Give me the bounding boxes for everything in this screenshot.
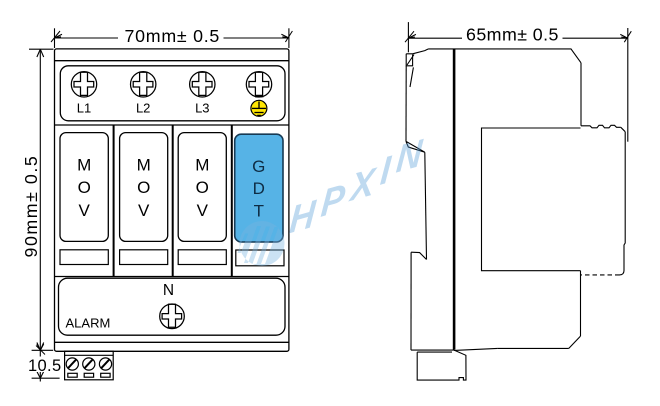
svg-text:D: D [253, 179, 265, 198]
svg-text:O: O [196, 178, 209, 197]
svg-text:M: M [137, 156, 151, 175]
svg-text:M: M [195, 156, 209, 175]
svg-text:L2: L2 [136, 101, 150, 116]
svg-text:65mm± 0.5: 65mm± 0.5 [466, 25, 559, 45]
svg-text:V: V [79, 201, 91, 220]
svg-text:70mm± 0.5: 70mm± 0.5 [125, 26, 221, 46]
svg-text:G: G [252, 157, 265, 176]
svg-text:V: V [138, 201, 150, 220]
svg-text:O: O [137, 178, 150, 197]
svg-text:O: O [78, 178, 91, 197]
svg-text:V: V [197, 201, 209, 220]
svg-text:L1: L1 [77, 101, 91, 116]
svg-text:M: M [77, 156, 91, 175]
svg-text:N: N [163, 282, 174, 299]
svg-text:L3: L3 [195, 101, 209, 116]
svg-text:10.5: 10.5 [28, 357, 62, 375]
svg-text:T: T [254, 202, 264, 221]
svg-text:ALARM: ALARM [66, 315, 111, 330]
svg-text:90mm± 0.5: 90mm± 0.5 [21, 155, 41, 258]
